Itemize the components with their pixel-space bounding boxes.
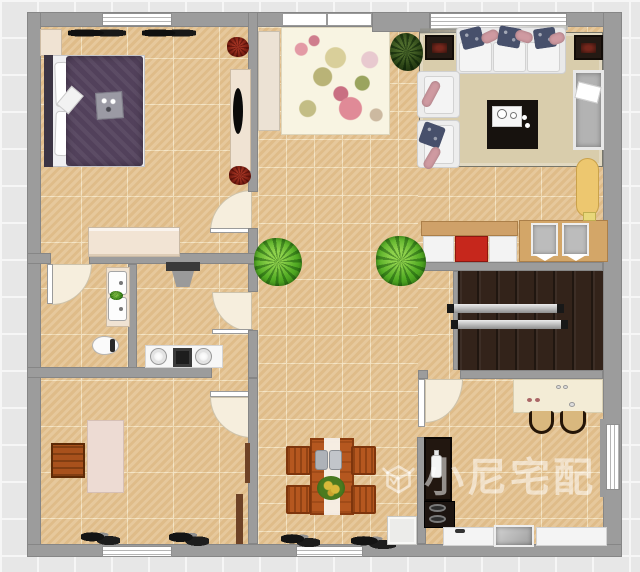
bed-headboard xyxy=(44,55,53,167)
sideboard-top xyxy=(421,221,518,236)
bar-dot-red-1 xyxy=(527,398,532,402)
drying-rod-2 xyxy=(451,320,568,329)
wall-bath-bottom xyxy=(27,367,212,378)
place-setting-1 xyxy=(315,450,328,470)
drying-rod-1 xyxy=(447,304,564,313)
shoes-dining-1 xyxy=(281,532,320,549)
floor-plan-canvas: 小尼宅配 xyxy=(0,0,640,572)
entry-plant xyxy=(390,33,423,71)
kitchen-counter-right xyxy=(536,527,607,546)
wall-kitchen-top xyxy=(460,370,603,379)
floral-rug xyxy=(281,27,390,135)
bar-dot-red-2 xyxy=(535,398,540,402)
study-window xyxy=(102,546,172,557)
hall-cabinet xyxy=(387,516,417,545)
sideboard-drawer-red xyxy=(455,236,488,262)
vanity-plant xyxy=(110,291,123,300)
side-table-left xyxy=(425,35,454,60)
teacup xyxy=(510,112,517,119)
teapot xyxy=(497,109,507,119)
tv xyxy=(233,88,243,134)
kitchen-counter-left xyxy=(443,527,494,546)
wall-hall-left-b xyxy=(248,330,258,378)
bedroom-window xyxy=(102,13,172,26)
wall-bedroom-bottom-a xyxy=(27,253,51,264)
shoes-study-1 xyxy=(81,530,120,547)
bar-dot-gray xyxy=(569,402,575,407)
dining-chair-4 xyxy=(351,485,376,514)
dining-chair-3 xyxy=(286,485,311,514)
laundry-door xyxy=(212,329,253,334)
water-heater-bar xyxy=(166,262,200,271)
ironing-board xyxy=(576,158,599,217)
centerpiece xyxy=(317,476,345,500)
entry-door xyxy=(282,13,372,26)
wall-speaker-left xyxy=(68,27,126,39)
bed-quilt xyxy=(95,91,124,120)
toilet-seat-band xyxy=(110,339,115,352)
kitchen-wall-panel xyxy=(600,419,606,497)
bedroom-door xyxy=(210,228,253,233)
wall-kitchen-top-stub xyxy=(418,370,428,379)
red-plant-bottom xyxy=(229,166,251,185)
wardrobe xyxy=(88,227,180,257)
place-setting-2 xyxy=(329,450,342,470)
study-door xyxy=(210,391,252,397)
kitchen-door xyxy=(418,379,425,427)
nightstand xyxy=(40,29,62,56)
wall-desk-bottom xyxy=(418,262,603,271)
washer xyxy=(173,348,192,367)
kitchen-faucet xyxy=(455,529,465,533)
bar-knob-2 xyxy=(563,385,568,389)
wall-shelf-1 xyxy=(245,443,250,483)
table-dot-1 xyxy=(522,115,527,120)
notepad xyxy=(583,212,596,221)
bathroom-door xyxy=(47,264,53,304)
dining-chair-2 xyxy=(351,446,376,475)
laundry-sink-1 xyxy=(150,348,167,365)
shoes-study-2 xyxy=(169,530,209,548)
side-table-right xyxy=(574,35,603,60)
dining-chair-1 xyxy=(286,446,311,475)
study-chair xyxy=(51,443,85,478)
wall-speaker-right xyxy=(142,27,196,39)
sideboard-drawer-white-1 xyxy=(423,236,454,262)
study-desk xyxy=(87,420,124,493)
desk-chair-1 xyxy=(531,223,558,256)
tea-tray xyxy=(492,106,522,127)
sideboard-drawer-white-2 xyxy=(489,236,517,262)
bar-knob-1 xyxy=(556,385,561,389)
stove-burner-2 xyxy=(429,515,446,523)
watermark-logo-icon xyxy=(381,450,416,506)
desk-chair-2 xyxy=(562,223,589,256)
runner-mat xyxy=(258,31,280,131)
red-plant-top xyxy=(227,37,249,57)
kitchen-sink xyxy=(494,525,534,547)
wall-shelf-2 xyxy=(236,494,243,544)
table-dot-2 xyxy=(525,123,530,128)
hall-plant-2 xyxy=(376,236,426,286)
wall-outer-left xyxy=(27,12,41,557)
watermark: 小尼宅配 xyxy=(381,447,596,509)
kitchen-window xyxy=(606,424,620,490)
bath-sink-2 xyxy=(108,297,127,321)
hall-plant-1 xyxy=(254,238,302,286)
watermark-text: 小尼宅配 xyxy=(424,458,596,498)
laundry-sink-2 xyxy=(195,348,212,365)
